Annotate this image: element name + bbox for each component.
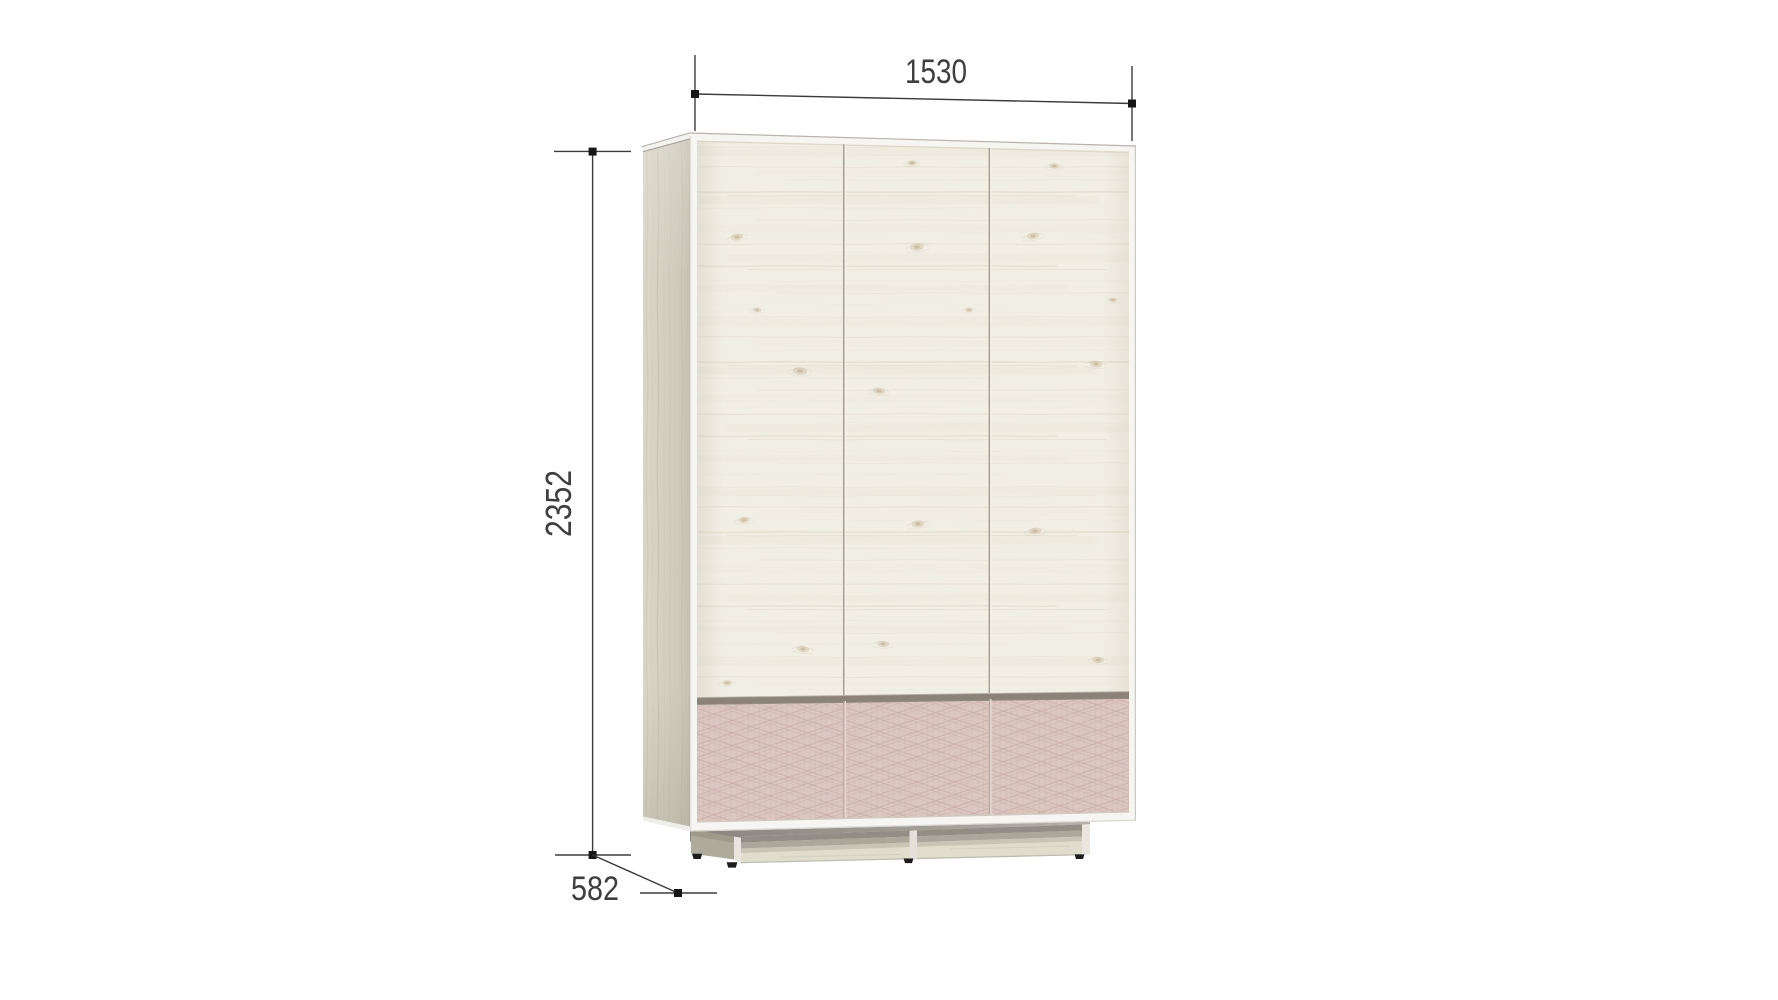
svg-text:1530: 1530: [905, 53, 967, 91]
svg-text:2352: 2352: [538, 470, 579, 537]
svg-text:582: 582: [571, 870, 619, 908]
